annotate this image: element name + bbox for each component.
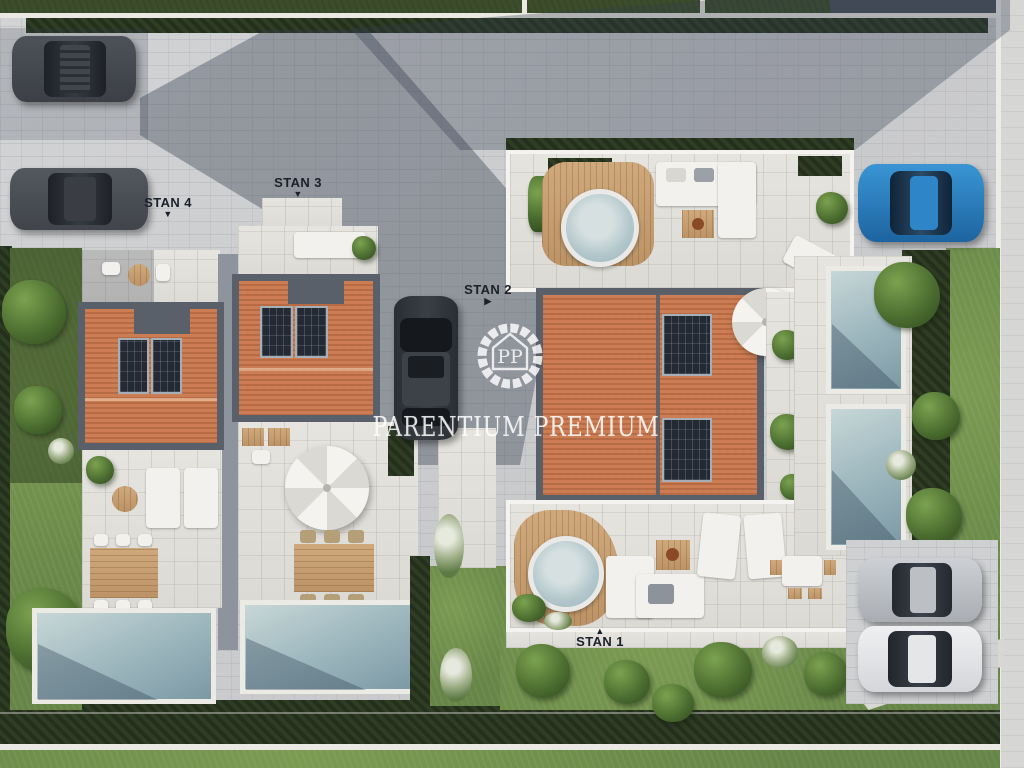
tree xyxy=(804,652,848,696)
unit-marker-stan-3: STAN 3 ▼ xyxy=(268,176,328,198)
tree xyxy=(516,644,570,698)
sofa-cushion xyxy=(666,168,686,182)
planter-box xyxy=(512,594,546,622)
flowering-shrub xyxy=(48,438,74,464)
roof-notch xyxy=(288,274,344,304)
dining-table xyxy=(782,556,822,586)
dining-chair xyxy=(300,530,316,543)
tree xyxy=(912,392,960,440)
flowering-shrub xyxy=(886,450,916,480)
tree xyxy=(652,684,694,722)
roof-ridge xyxy=(239,368,373,371)
dining-chair xyxy=(824,560,836,575)
dining-chair xyxy=(770,560,782,575)
unit-marker-stan-1: ▲ STAN 1 xyxy=(570,628,630,650)
outdoor-sofa xyxy=(718,162,756,238)
tree xyxy=(2,280,66,344)
fire-bowl xyxy=(692,218,704,230)
unit-marker-stan-4: STAN 4 ▼ xyxy=(138,196,198,218)
dining-chair xyxy=(116,534,130,546)
sun-lounger xyxy=(697,512,741,580)
roof-notch xyxy=(134,302,190,334)
unit-label: STAN 1 xyxy=(570,635,630,650)
terrace-chair xyxy=(102,262,120,275)
car-roof xyxy=(910,567,936,613)
dining-chair xyxy=(808,588,822,599)
flowering-shrub xyxy=(434,514,464,578)
table-bowl xyxy=(666,548,679,561)
planter-box xyxy=(798,156,842,176)
fence-line-bottom xyxy=(0,712,1000,714)
solar-panel xyxy=(295,306,328,358)
dining-chair xyxy=(94,534,108,546)
sun-lounger xyxy=(146,468,180,528)
site-plan-render: STAN 4 ▼ STAN 3 ▼ STAN 2 ▶ ▲ STAN 1 PP P… xyxy=(0,0,1024,768)
flowering-shrub xyxy=(440,648,472,702)
parked-car-suv-1 xyxy=(12,36,136,102)
sofa-cushion xyxy=(648,584,674,604)
roof-ridge xyxy=(656,295,660,495)
watermark-logo: PP xyxy=(472,318,548,394)
dining-chair xyxy=(138,534,152,546)
hot-tub xyxy=(561,189,639,267)
grass-strip-bottom xyxy=(0,750,1000,768)
arrow-down-icon: ▼ xyxy=(268,191,328,198)
tree xyxy=(906,488,962,544)
car-roof xyxy=(910,176,938,230)
flowering-shrub xyxy=(762,636,798,668)
logo-monogram: PP xyxy=(497,346,523,368)
potted-plant xyxy=(816,192,848,224)
dining-chair xyxy=(324,530,340,543)
parked-car-silver xyxy=(858,558,982,622)
terrace-chair xyxy=(156,264,170,281)
solar-panel xyxy=(662,418,712,482)
lounge-chair xyxy=(268,428,290,446)
fence-post xyxy=(522,0,527,14)
umbrella-pole xyxy=(323,484,331,492)
solar-panel xyxy=(662,314,712,376)
solar-panel xyxy=(151,338,182,394)
sofa-cushion xyxy=(694,168,714,182)
car-sunroof xyxy=(408,356,444,378)
tree xyxy=(694,642,752,698)
parked-car-white xyxy=(858,626,982,692)
potted-plant xyxy=(86,456,114,484)
tree xyxy=(874,262,940,328)
lounge-chair xyxy=(242,428,264,446)
parked-car-suv-2 xyxy=(10,168,148,230)
car-roof xyxy=(60,45,90,93)
flowering-shrub xyxy=(544,612,572,630)
unit-marker-stan-2: STAN 2 ▶ xyxy=(458,283,518,305)
car-glass xyxy=(400,318,452,352)
arrow-right-icon: ▶ xyxy=(458,298,518,305)
sun-lounger xyxy=(184,468,218,528)
road-right xyxy=(1001,0,1024,768)
tree xyxy=(604,660,650,704)
villa-walkway xyxy=(506,632,854,648)
car-roof xyxy=(908,635,936,683)
dining-table xyxy=(90,548,158,598)
car-roof xyxy=(64,177,96,221)
potted-plant xyxy=(352,236,376,260)
watermark-text: PARENTIUM PREMIUM xyxy=(372,412,659,443)
dining-table xyxy=(294,544,374,592)
solar-panel xyxy=(260,306,293,358)
arrow-down-icon: ▼ xyxy=(138,211,198,218)
roof-ridge xyxy=(85,398,217,401)
parked-car-blue xyxy=(858,164,984,242)
round-table xyxy=(112,486,138,512)
dining-chair xyxy=(788,588,802,599)
bistro-table xyxy=(128,264,150,286)
side-table xyxy=(252,450,270,464)
cast-shadow xyxy=(350,0,1010,150)
tree xyxy=(14,386,62,434)
solar-panel xyxy=(118,338,149,394)
villa-main-roof xyxy=(536,288,764,502)
dining-chair xyxy=(348,530,364,543)
hedge-alley xyxy=(410,556,430,704)
